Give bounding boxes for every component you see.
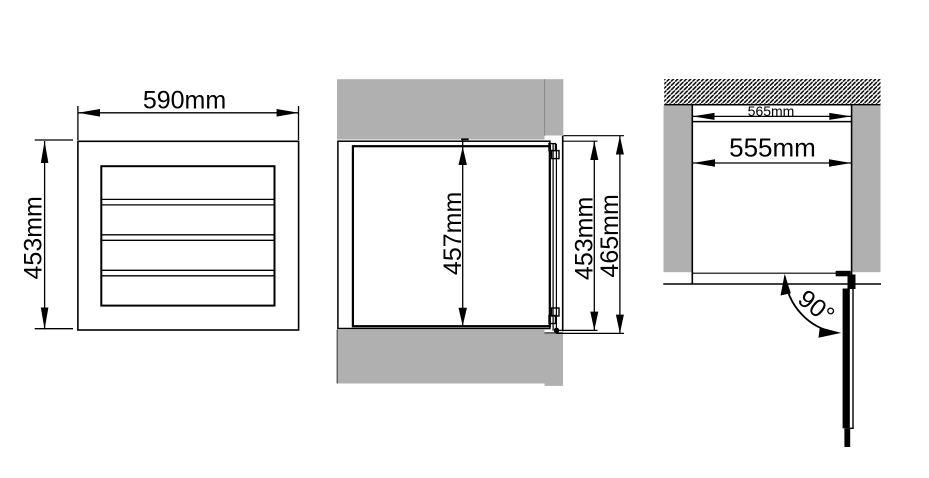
svg-text:590mm: 590mm: [143, 87, 226, 115]
svg-text:453mm: 453mm: [19, 196, 47, 279]
svg-text:555mm: 555mm: [729, 133, 816, 163]
